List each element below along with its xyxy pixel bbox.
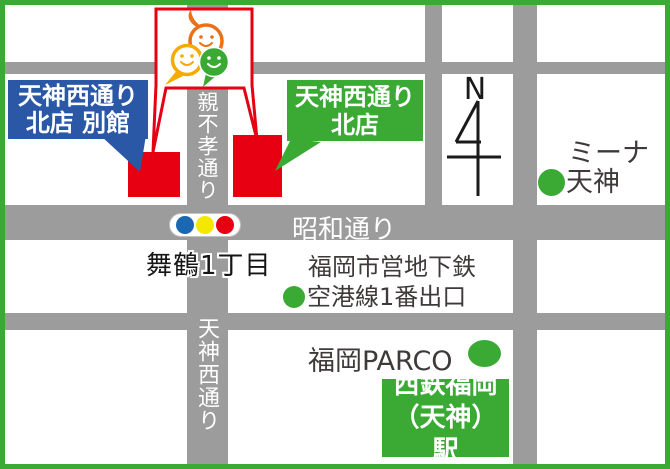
mina-row: 天神 (538, 168, 649, 197)
annex-store-callout: 天神西通り 北店 別館 (8, 80, 148, 139)
main-callout-tail (275, 139, 321, 171)
annex-store-name-line1: 天神西通り (8, 83, 148, 110)
maizuru-district-label: 舞鶴1丁目 (146, 245, 272, 282)
parco-dot-icon (468, 340, 501, 367)
north-arrow-icon (447, 101, 501, 196)
subway-exit-annotation: 福岡市営地下鉄 空港線1番出口 (283, 252, 476, 312)
subway-exit-row: 空港線1番出口 (283, 282, 476, 312)
parco-label: 福岡PARCO (308, 339, 453, 378)
nishitetsu-station-label: 西鉄福岡 （天神）駅 (382, 379, 509, 457)
main-store-callout: 天神西通り 北店 (287, 80, 423, 141)
mina-tenjin-annotation: ミーナ 天神 (538, 139, 649, 197)
access-map: 親不孝通り 天神西通り 昭和通り (0, 0, 670, 469)
map-overlay-graphics: N (0, 0, 670, 469)
traffic-lamp-red (216, 216, 234, 234)
traffic-light-icon (169, 213, 241, 237)
annex-store-name-line2: 北店 別館 (8, 110, 148, 137)
main-store-name-line1: 天神西通り (287, 83, 423, 111)
station-name-line2: （天神）駅 (382, 402, 509, 468)
subway-exit-label: 空港線1番出口 (307, 282, 466, 312)
mina-label-line2: 天神 (566, 168, 620, 197)
subway-name-label: 福岡市営地下鉄 (308, 252, 476, 282)
traffic-lamp-yellow (196, 216, 214, 234)
subway-exit-dot-icon (283, 286, 305, 308)
mina-label-line1: ミーナ (568, 139, 649, 168)
traffic-lamp-blue (176, 216, 194, 234)
compass-north-label: N (464, 72, 486, 107)
main-store-name-line2: 北店 (287, 111, 423, 139)
mina-dot-icon (538, 169, 565, 196)
